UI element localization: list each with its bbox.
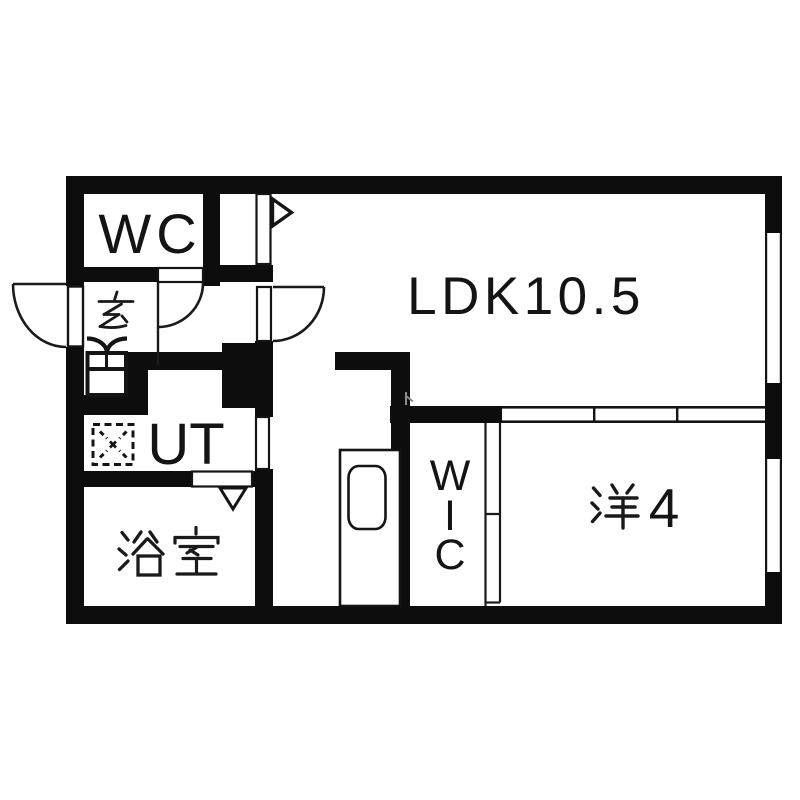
svg-text:C: C bbox=[434, 531, 465, 579]
svg-text:LDK10.5: LDK10.5 bbox=[407, 267, 645, 326]
svg-text:UT: UT bbox=[147, 412, 224, 477]
svg-text:4: 4 bbox=[649, 477, 680, 539]
svg-text:WC: WC bbox=[98, 202, 201, 265]
